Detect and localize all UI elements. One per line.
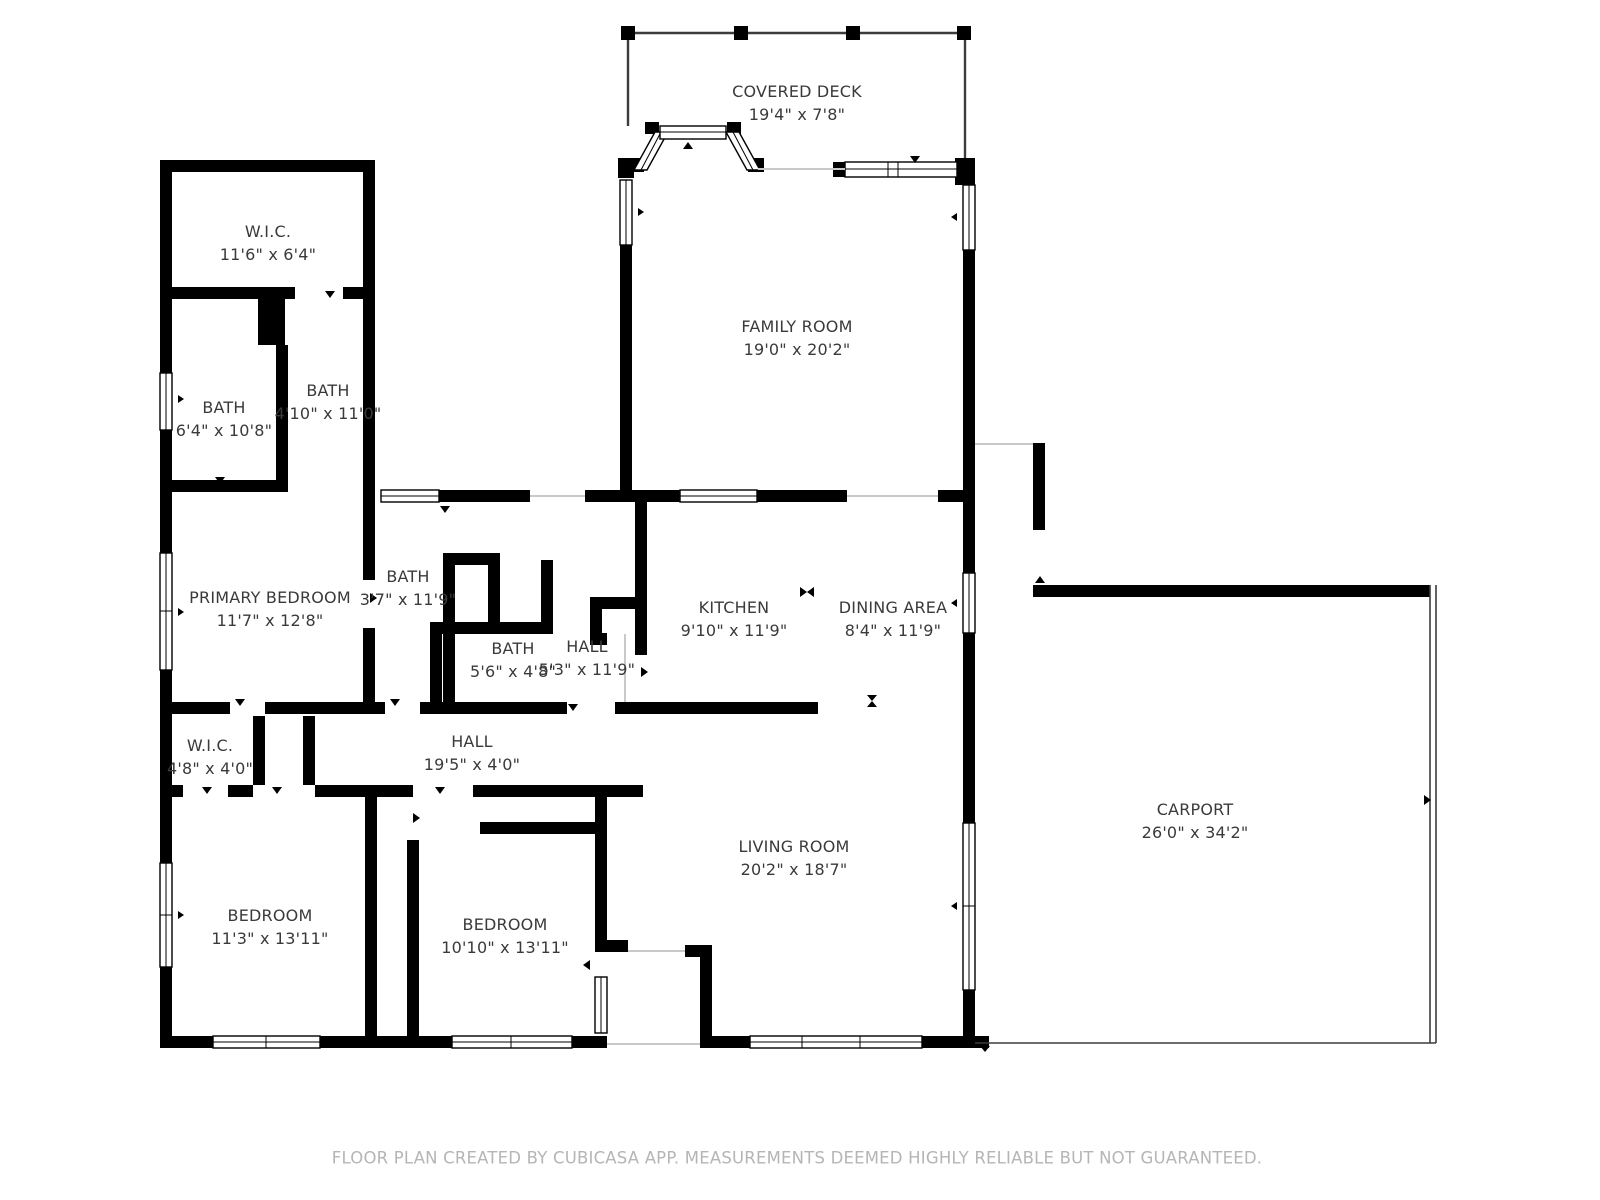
room-dims: 9'10" x 11'9" [681, 619, 788, 642]
room-dims: 4'8" x 4'0" [167, 757, 253, 780]
room-name: BEDROOM [441, 913, 569, 936]
room-name: BATH [176, 396, 272, 419]
room-label-bath-410: BATH 4'10" x 11'0" [275, 379, 382, 425]
room-name: HALL [539, 635, 635, 658]
footer-disclaimer: FLOOR PLAN CREATED BY CUBICASA APP. MEAS… [332, 1149, 1262, 1168]
room-dims: 19'0" x 20'2" [741, 338, 852, 361]
floor-plan-page: { "title": "Floor plan", "colors": { "wa… [0, 0, 1600, 1200]
room-label-living-room: LIVING ROOM 20'2" x 18'7" [738, 835, 849, 881]
room-dims: 20'2" x 18'7" [738, 858, 849, 881]
room-label-family-room: FAMILY ROOM 19'0" x 20'2" [741, 315, 852, 361]
room-name: BATH [360, 565, 456, 588]
room-label-primary-bedroom: PRIMARY BEDROOM 11'7" x 12'8" [189, 586, 351, 632]
room-dims: 26'0" x 34'2" [1142, 821, 1249, 844]
deck-post [846, 26, 860, 40]
room-name: HALL [424, 730, 520, 753]
room-name: KITCHEN [681, 596, 788, 619]
bay-window [628, 122, 764, 172]
room-dims: 3'7" x 11'9" [360, 588, 456, 611]
room-dims: 11'3" x 13'11" [211, 927, 328, 950]
room-name: BATH [275, 379, 382, 402]
room-label-hall-horizontal: HALL 19'5" x 4'0" [424, 730, 520, 776]
room-dims: 11'7" x 12'8" [189, 609, 351, 632]
room-dims: 10'10" x 13'11" [441, 936, 569, 959]
room-dims: 11'6" x 6'4" [220, 243, 316, 266]
room-label-dining-area: DINING AREA 8'4" x 11'9" [839, 596, 948, 642]
room-label-carport: CARPORT 26'0" x 34'2" [1142, 798, 1249, 844]
room-label-bath-left: BATH 6'4" x 10'8" [176, 396, 272, 442]
deck-post [621, 26, 635, 40]
room-name: DINING AREA [839, 596, 948, 619]
room-dims: 19'5" x 4'0" [424, 753, 520, 776]
room-label-bath-37: BATH 3'7" x 11'9" [360, 565, 456, 611]
room-label-bedroom-center: BEDROOM 10'10" x 13'11" [441, 913, 569, 959]
room-name: W.I.C. [167, 734, 253, 757]
room-name: LIVING ROOM [738, 835, 849, 858]
room-dims: 4'10" x 11'0" [275, 402, 382, 425]
deck-post [734, 26, 748, 40]
room-label-bedroom-left: BEDROOM 11'3" x 13'11" [211, 904, 328, 950]
room-label-wic-upper: W.I.C. 11'6" x 6'4" [220, 220, 316, 266]
room-dims: 19'4" x 7'8" [732, 103, 862, 126]
room-name: PRIMARY BEDROOM [189, 586, 351, 609]
room-name: COVERED DECK [732, 80, 862, 103]
room-label-kitchen: KITCHEN 9'10" x 11'9" [681, 596, 788, 642]
deck-post [957, 26, 971, 40]
room-dims: 6'4" x 10'8" [176, 419, 272, 442]
room-label-hall-vertical: HALL 5'3" x 11'9" [539, 635, 635, 681]
room-dims: 5'3" x 11'9" [539, 658, 635, 681]
room-name: W.I.C. [220, 220, 316, 243]
room-label-wic-lower: W.I.C. 4'8" x 4'0" [167, 734, 253, 780]
room-name: FAMILY ROOM [741, 315, 852, 338]
room-label-covered-deck: COVERED DECK 19'4" x 7'8" [732, 80, 862, 126]
room-name: BEDROOM [211, 904, 328, 927]
room-dims: 8'4" x 11'9" [839, 619, 948, 642]
room-name: CARPORT [1142, 798, 1249, 821]
